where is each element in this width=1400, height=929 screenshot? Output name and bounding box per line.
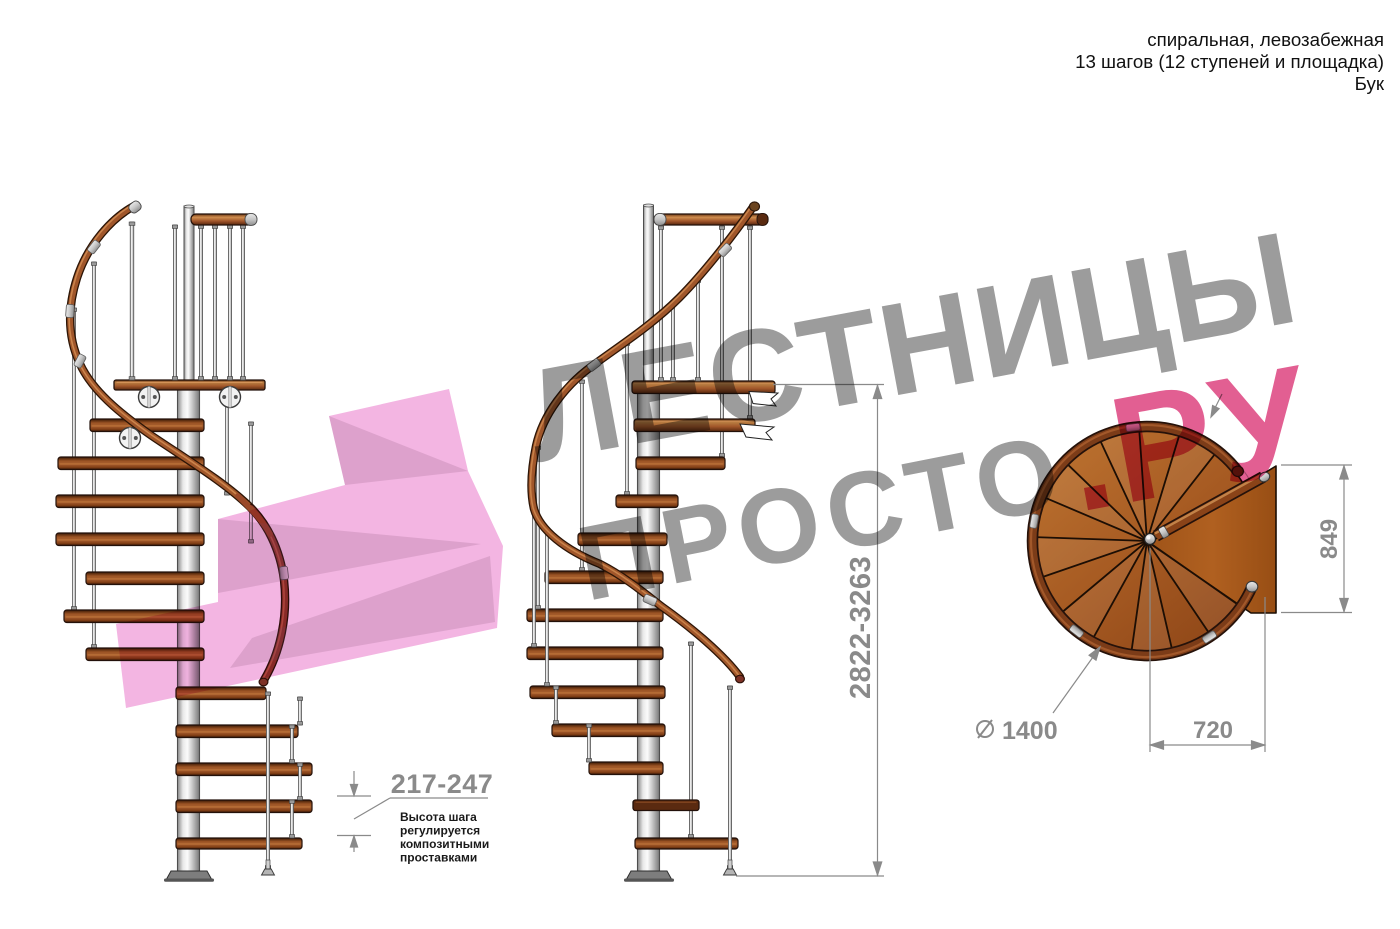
svg-text:849: 849 xyxy=(1316,519,1343,559)
svg-text:Высота шагарегулируетсякомпози: Высота шагарегулируетсякомпозитнымипрост… xyxy=(400,810,489,865)
svg-text:1400: 1400 xyxy=(1002,717,1058,745)
svg-text:720: 720 xyxy=(1193,717,1233,744)
svg-text:2822-3263: 2822-3263 xyxy=(845,556,877,699)
svg-text:217-247: 217-247 xyxy=(391,769,494,799)
